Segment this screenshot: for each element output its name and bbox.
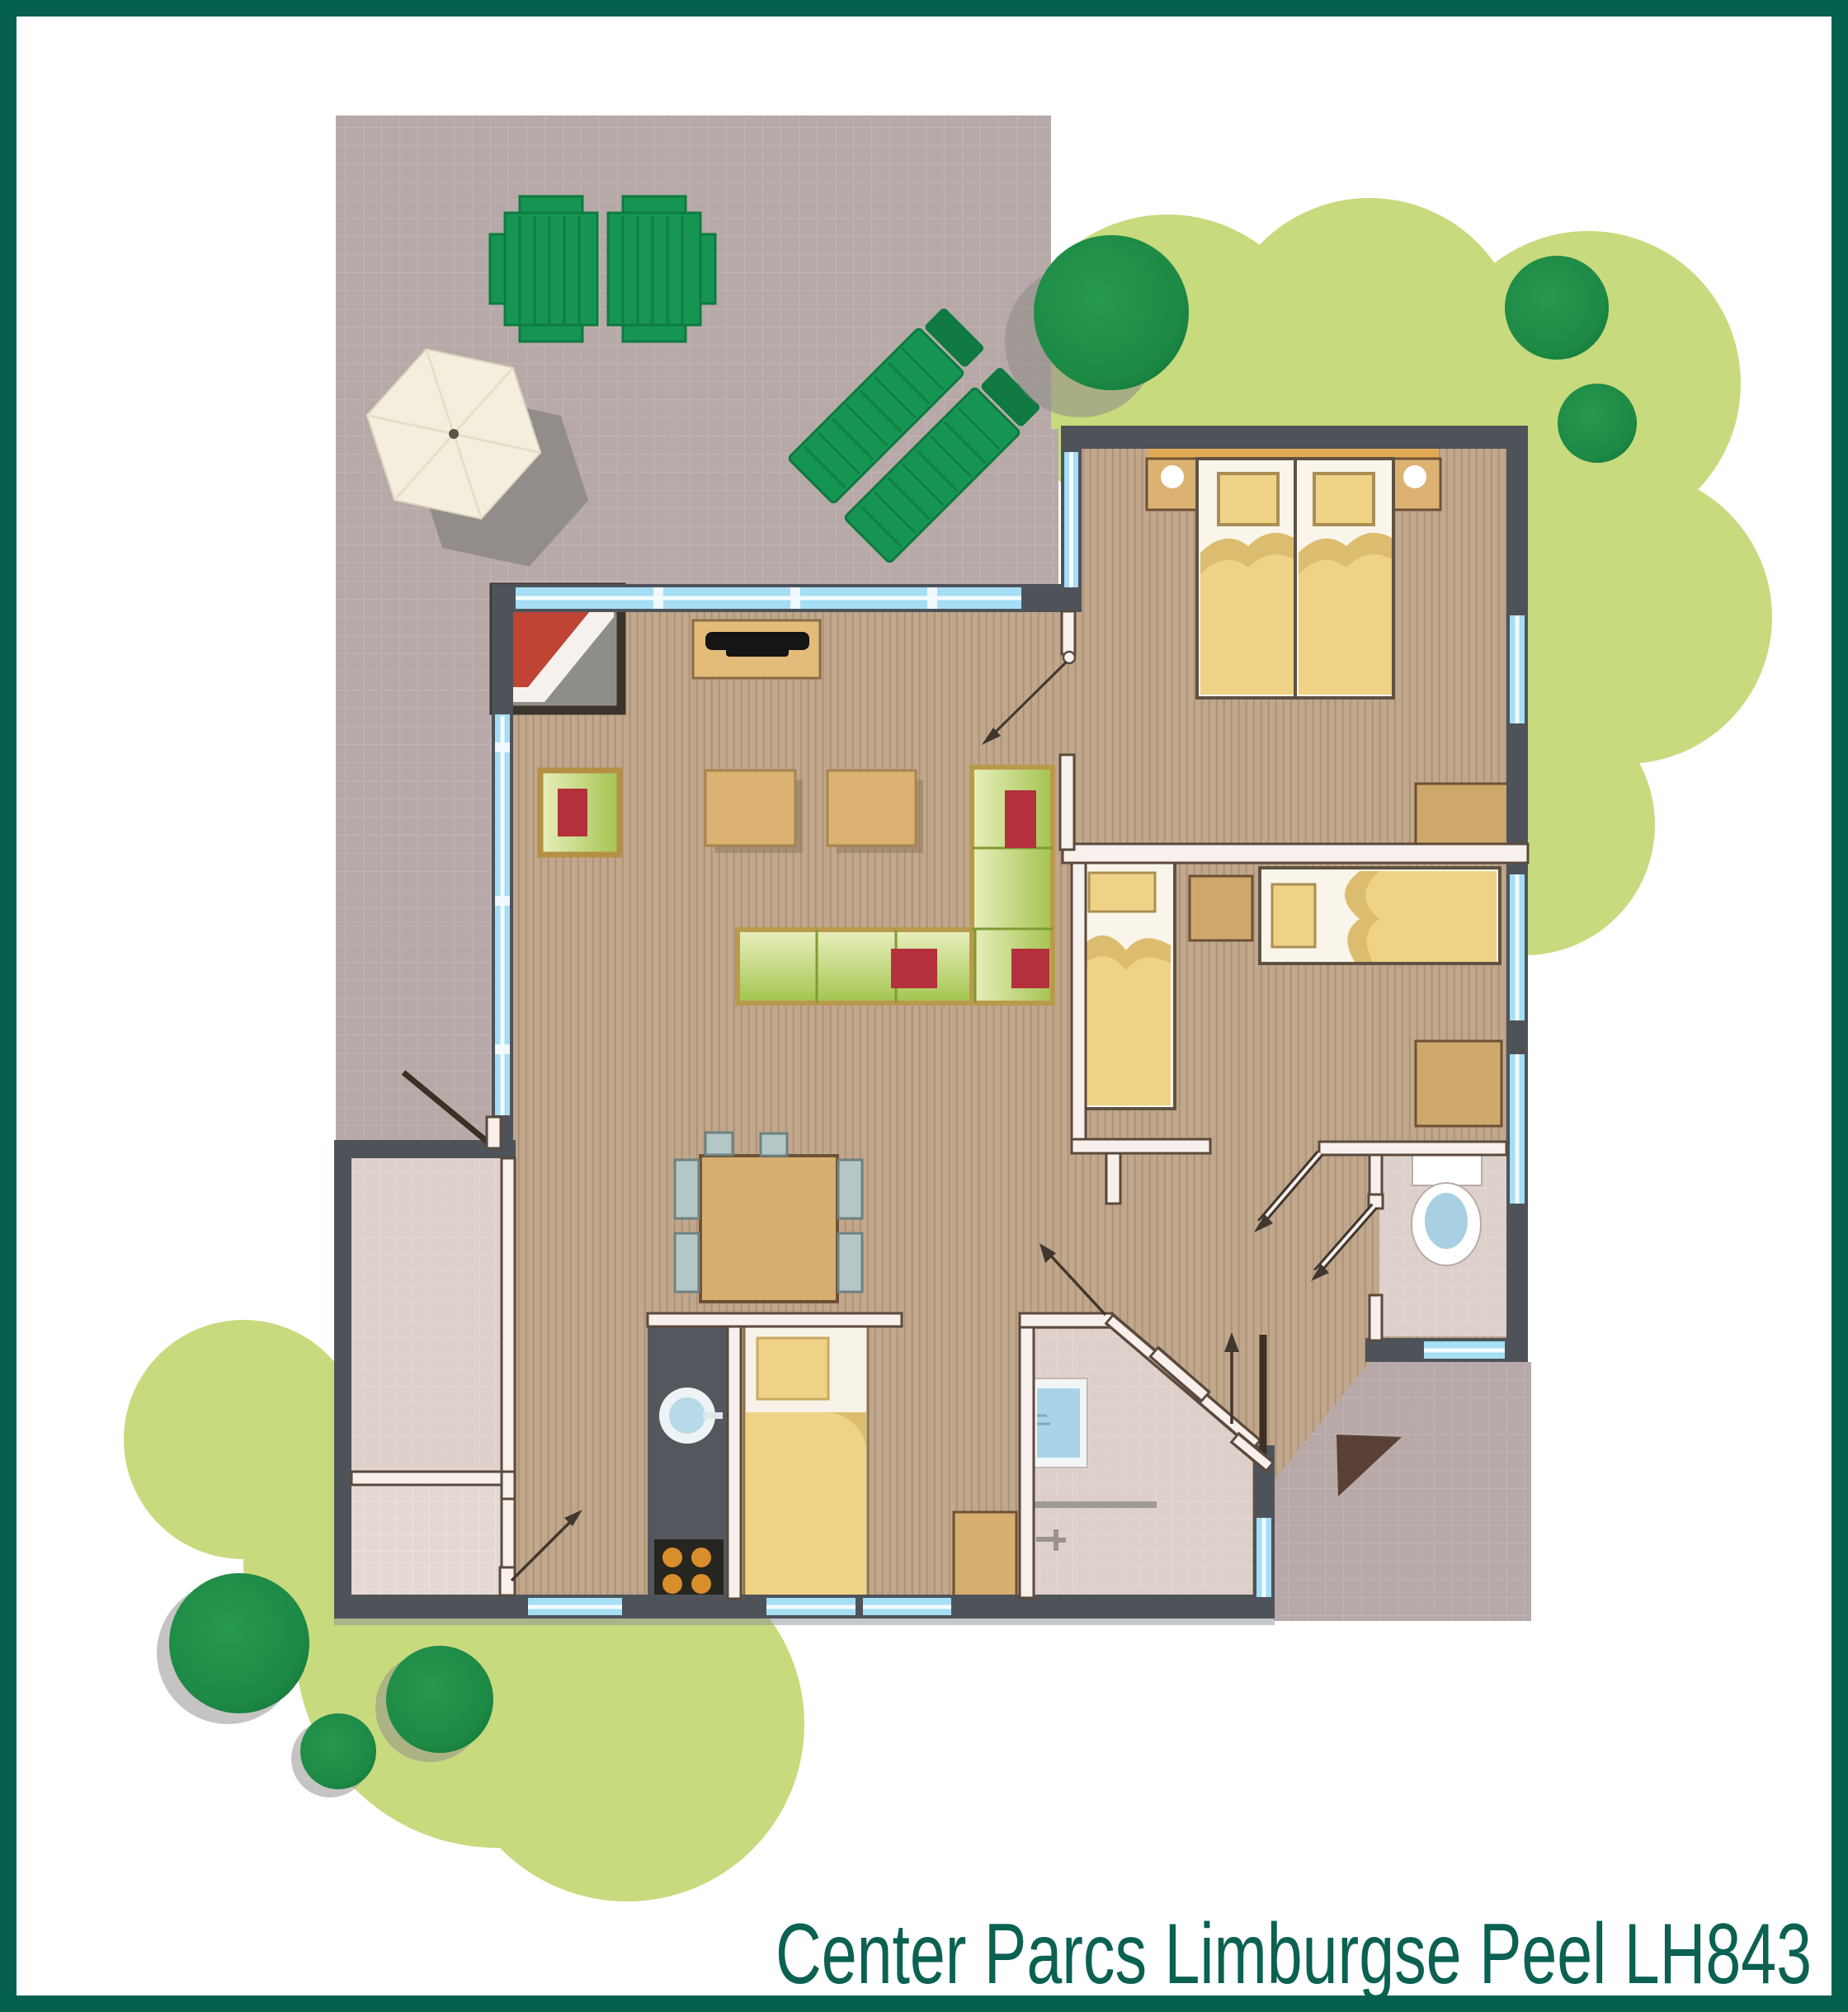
svg-text:Center Parcs Limburgse Peel LH: Center Parcs Limburgse Peel LH843	[775, 1906, 1812, 2002]
